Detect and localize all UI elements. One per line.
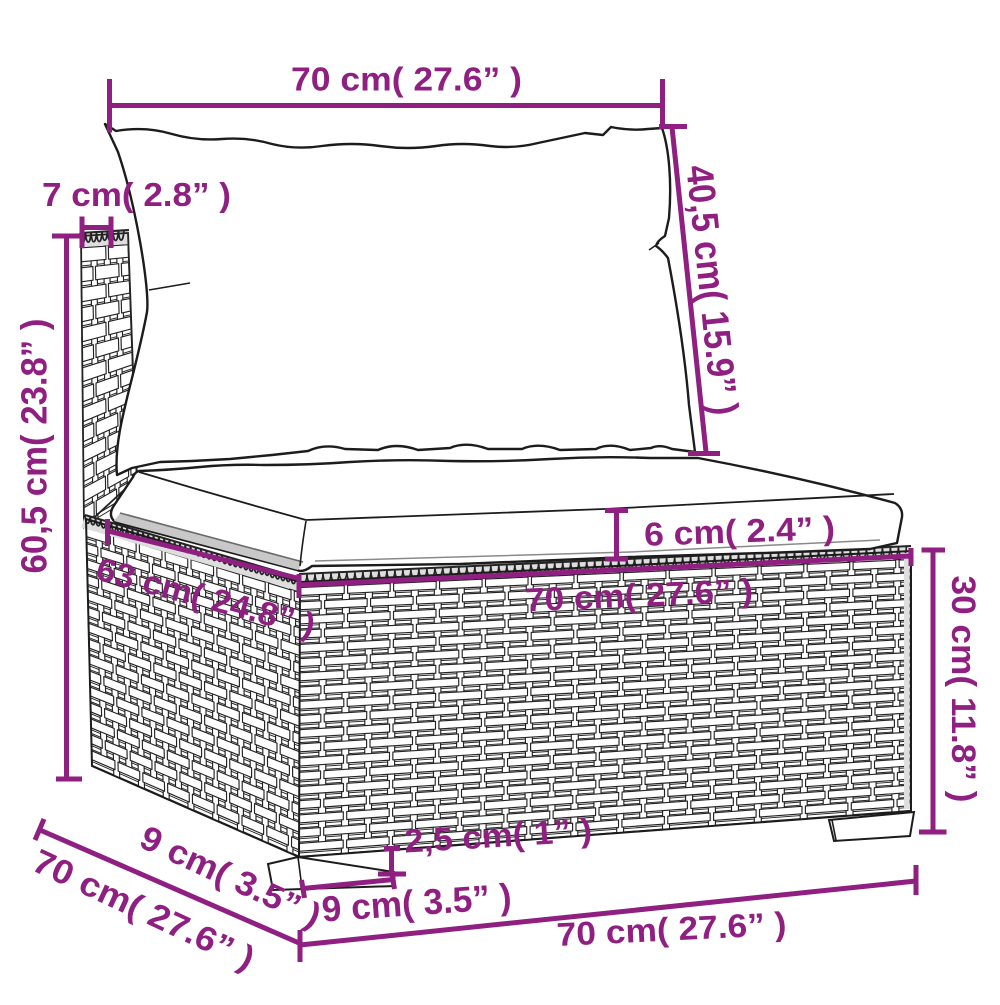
svg-text:70 cm( 27.6” ): 70 cm( 27.6” ) <box>291 60 522 97</box>
svg-text:60,5 cm( 23.8” ): 60,5 cm( 23.8” ) <box>14 319 55 574</box>
svg-text:7 cm( 2.8” ): 7 cm( 2.8” ) <box>42 176 231 213</box>
svg-text:30 cm( 11.8” ): 30 cm( 11.8” ) <box>944 576 982 803</box>
svg-text:6 cm( 2.4” ): 6 cm( 2.4” ) <box>643 509 835 553</box>
